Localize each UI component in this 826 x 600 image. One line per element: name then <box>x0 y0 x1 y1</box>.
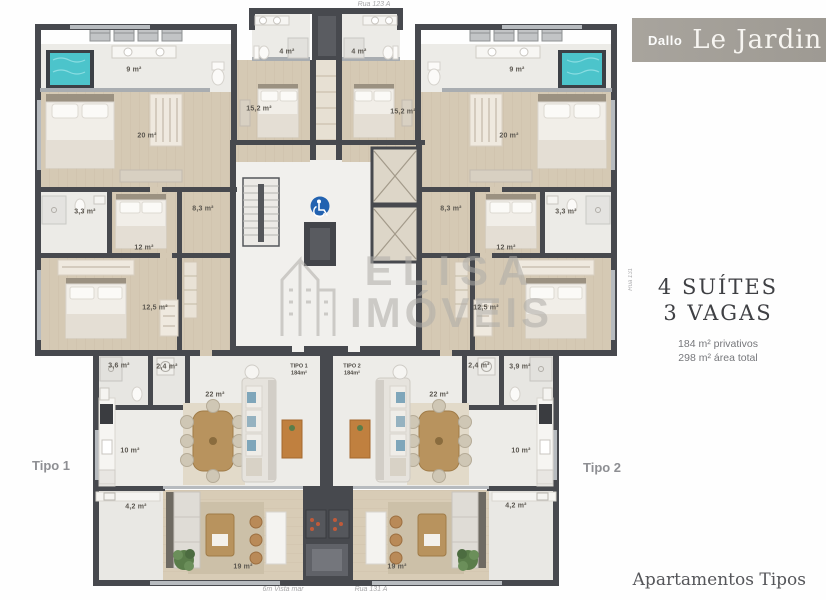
entry-tipo1-area: 184m² <box>290 371 307 378</box>
room-label: 20 m² <box>137 133 156 140</box>
room-label: 9 m² <box>126 67 141 74</box>
street-bottom: Rua 131 A <box>355 586 388 593</box>
room-label: 2,4 m² <box>468 363 489 370</box>
floorplan-page: ELISA IMÓVEIS 9 m²20 m²3,3 m²12 m²8,3 m²… <box>0 0 826 600</box>
label-tipo2: Tipo 2 <box>583 460 621 475</box>
room-label: 22 m² <box>429 392 448 399</box>
spec-suites: 4 SUÍTES <box>618 274 818 300</box>
street-top: Rua 123 A <box>358 1 391 8</box>
brand-banner: Dallo Le Jardin <box>632 18 826 62</box>
room-label: 19 m² <box>387 564 406 571</box>
unit-specs: 4 SUÍTES 3 VAGAS 184 m² privativos 298 m… <box>618 274 818 365</box>
page-caption: Apartamentos Tipos <box>633 570 806 590</box>
room-label: 4 m² <box>279 49 294 56</box>
room-label: 12 m² <box>134 245 153 252</box>
room-label: 19 m² <box>233 564 252 571</box>
project-logo: Le Jardin <box>692 25 822 55</box>
room-label: 15,2 m² <box>246 106 272 113</box>
room-label: 10 m² <box>511 448 530 455</box>
room-label: 8,3 m² <box>440 206 461 213</box>
room-label: 4 m² <box>351 49 366 56</box>
entry-tipo2-area: 184m² <box>343 371 360 378</box>
label-tipo1: Tipo 1 <box>32 458 70 473</box>
developer-logo: Dallo <box>648 33 682 48</box>
room-label: 4,2 m² <box>125 504 146 511</box>
room-label: 3,9 m² <box>509 364 530 371</box>
room-label: 3,3 m² <box>74 209 95 216</box>
entry-label-tipo2: TIPO 2 184m² <box>343 364 360 379</box>
spec-total-area: 298 m² área total <box>618 351 818 365</box>
street-side: Rua 131 <box>628 268 634 291</box>
spec-parking: 3 VAGAS <box>618 300 818 326</box>
entry-label-tipo1: TIPO 1 184m² <box>290 364 307 379</box>
room-label: 20 m² <box>499 133 518 140</box>
room-label: 15,2 m² <box>390 109 416 116</box>
view-note: 6m Vista mar <box>262 586 303 593</box>
room-label: 4,2 m² <box>505 503 526 510</box>
room-label: 12 m² <box>496 245 515 252</box>
room-label: 22 m² <box>205 392 224 399</box>
room-label: 8,3 m² <box>192 206 213 213</box>
room-label: 9 m² <box>509 67 524 74</box>
spec-private-area: 184 m² privativos <box>618 337 818 351</box>
room-label: 12,5 m² <box>473 305 499 312</box>
room-label: 12,5 m² <box>142 305 168 312</box>
room-label: 2,4 m² <box>156 364 177 371</box>
room-label: 3,3 m² <box>555 209 576 216</box>
room-label: 3,6 m² <box>108 363 129 370</box>
room-label: 10 m² <box>120 448 139 455</box>
